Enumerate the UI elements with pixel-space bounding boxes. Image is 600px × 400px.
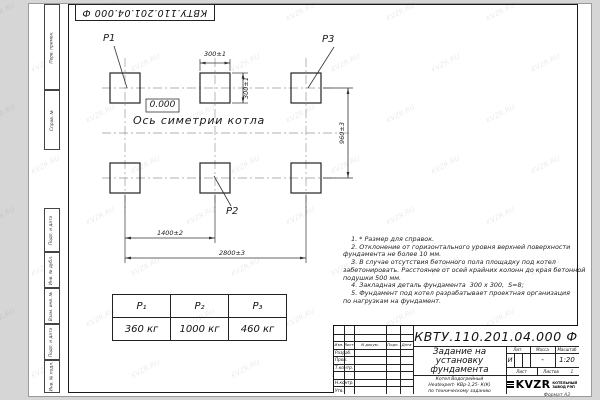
company-logo-text: KVZR xyxy=(516,378,551,391)
dim-pad-width: 300±1 xyxy=(197,50,233,58)
technical-notes: 1. * Размер для справок. 2. Отклонение о… xyxy=(343,236,587,305)
note-line: по нагрузкам на фундамент. xyxy=(343,298,587,306)
format-note: Формат А3 xyxy=(534,393,580,398)
doc-title-line: установку xyxy=(413,356,506,365)
mass-label: Масса xyxy=(530,346,555,353)
rev-col-list: Лист xyxy=(344,341,354,349)
sheets-label: Листов xyxy=(537,367,565,375)
doc-subtitle-line: по техническому заданию xyxy=(413,388,506,394)
dim-row-spacing: 960±3 xyxy=(338,118,346,148)
drawing-sheet-page: KVZR.RUKVZR.RUKVZR.RUKVZR.RUKVZR.RUKVZR.… xyxy=(0,0,600,400)
role-empty xyxy=(335,371,354,379)
doc-title-line: Задание на xyxy=(413,347,506,356)
weights-value-p2: 1000 кг xyxy=(171,318,229,341)
weights-header-p3: P₃ xyxy=(229,295,287,318)
weights-header-p1: P₁ xyxy=(113,295,171,318)
mass-value: - xyxy=(530,353,555,367)
weights-table-header-row: P₁ P₂ P₃ xyxy=(113,295,287,318)
doc-title-line: фундамента xyxy=(413,365,506,374)
lit-label: Лит. xyxy=(506,346,530,353)
scale-value: 1:20 xyxy=(555,353,579,367)
company-name: КОТЕЛЬНЫЙ ЗАВОД РЭП xyxy=(552,381,578,389)
dim-pad-height: 300±1 xyxy=(242,73,250,103)
boiler-axis-caption: Ось симетрии котла xyxy=(133,114,265,127)
dim-col-spacing: 1400±2 xyxy=(135,229,205,237)
weights-table-value-row: 360 кг 1000 кг 460 кг xyxy=(113,318,287,341)
title-block: Изм. Лист N докум. Подп. Дата Разраб. Пр… xyxy=(333,325,578,393)
rev-col-data: Дата xyxy=(400,341,413,349)
pad-label-p3: P3 xyxy=(322,34,334,45)
rev-col-podp: Подп. xyxy=(386,341,400,349)
dim-total-span: 2800±3 xyxy=(177,249,287,257)
logo-bars-icon xyxy=(507,381,514,388)
role-tkontr: Т.контр. xyxy=(335,364,354,372)
doc-number: КВТУ.110.201.04.000 Ф xyxy=(413,326,579,346)
weights-header-p2: P₂ xyxy=(171,295,229,318)
pad-label-p1: P1 xyxy=(103,33,115,44)
role-prov: Пров. xyxy=(335,356,354,364)
company-logo-block: KVZR КОТЕЛЬНЫЙ ЗАВОД РЭП xyxy=(506,375,579,394)
role-nkontr: Н.контр. xyxy=(335,379,354,387)
sheets-value: 1 xyxy=(565,367,579,375)
lit-value: И xyxy=(506,353,514,367)
rev-col-izm: Изм. xyxy=(334,341,344,349)
weights-table: P₁ P₂ P₃ 360 кг 1000 кг 460 кг xyxy=(112,294,287,341)
role-utv: Утв. xyxy=(335,386,354,394)
scale-label: Масштаб xyxy=(555,346,579,353)
weights-value-p3: 460 кг xyxy=(229,318,287,341)
sheet-label: Лист xyxy=(506,367,537,375)
elevation-mark: 0.000 xyxy=(146,99,179,112)
role-razrab: Разраб. xyxy=(335,349,354,357)
rev-col-ndocum: N докум. xyxy=(354,341,386,349)
weights-value-p1: 360 кг xyxy=(113,318,171,341)
pad-label-p2: P2 xyxy=(226,206,238,217)
